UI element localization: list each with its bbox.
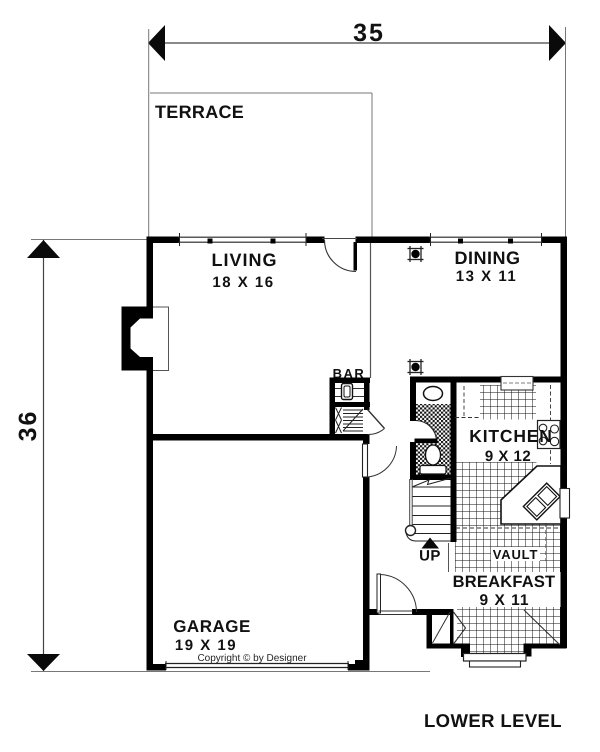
svg-text:UP: UP [419, 548, 441, 565]
svg-text:13 X 11: 13 X 11 [456, 268, 517, 285]
svg-text:LIVING: LIVING [211, 250, 277, 270]
svg-text:Copyright © by Designer: Copyright © by Designer [197, 653, 307, 664]
svg-text:VAULT: VAULT [493, 547, 538, 562]
svg-text:18 X 16: 18 X 16 [212, 274, 274, 291]
svg-text:KITCHEN: KITCHEN [469, 426, 552, 446]
svg-text:LOWER LEVEL: LOWER LEVEL [424, 710, 562, 731]
svg-text:35: 35 [353, 19, 385, 47]
svg-text:9 X 11: 9 X 11 [480, 592, 530, 609]
svg-text:DINING: DINING [455, 248, 521, 268]
svg-text:19 X 19: 19 X 19 [175, 637, 237, 654]
svg-text:GARAGE: GARAGE [173, 617, 251, 636]
svg-text:9 X 12: 9 X 12 [485, 448, 531, 465]
svg-text:BREAKFAST: BREAKFAST [453, 573, 556, 591]
svg-text:TERRACE: TERRACE [155, 102, 244, 122]
svg-text:36: 36 [14, 410, 42, 442]
